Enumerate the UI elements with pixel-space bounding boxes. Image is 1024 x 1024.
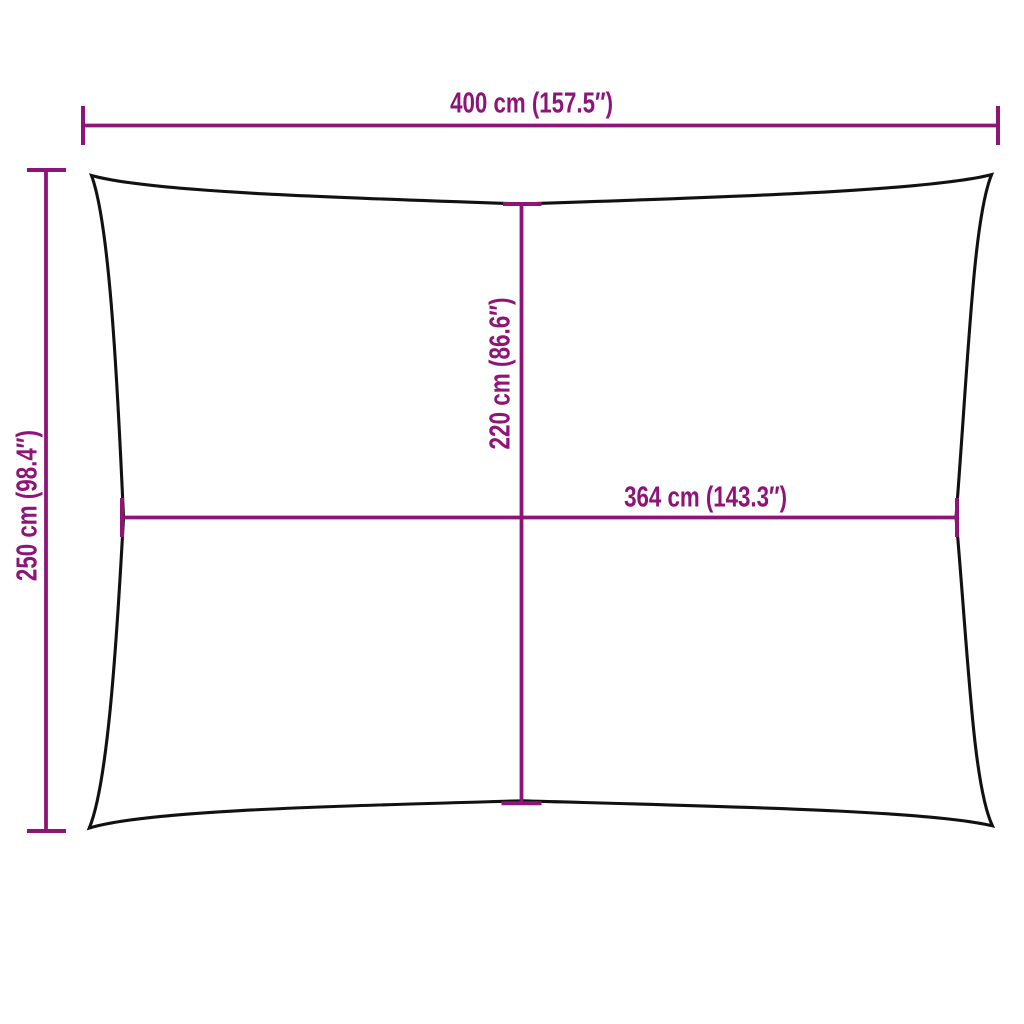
svg-text:364 cm (143.3″): 364 cm (143.3″)	[624, 482, 787, 514]
svg-text:250 cm (98.4″): 250 cm (98.4″)	[12, 430, 44, 581]
svg-text:400 cm (157.5″): 400 cm (157.5″)	[450, 88, 613, 120]
svg-text:220 cm (86.6″): 220 cm (86.6″)	[485, 298, 517, 450]
